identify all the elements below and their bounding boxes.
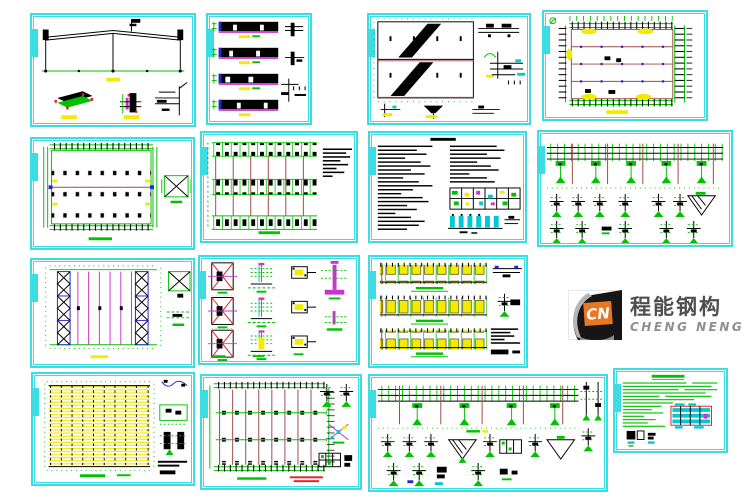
logo-name-english: CHENG NENG	[630, 320, 744, 334]
notes-title	[652, 375, 685, 378]
company-logo: CN 程能钢构 CHENG NENG	[568, 284, 718, 346]
sheet-label	[80, 474, 105, 477]
general-notes-drawing	[372, 135, 523, 239]
mini-schedule	[450, 188, 520, 209]
gable-elevations-drawing	[371, 17, 527, 121]
gable-elevation	[374, 19, 473, 102]
sheet-truss-elevations	[368, 255, 528, 368]
detail-connection	[120, 93, 141, 119]
drawing-collage: CN 程能钢构 CHENG NENG	[0, 0, 750, 500]
plan-grid	[49, 151, 154, 224]
north-mark	[550, 18, 556, 24]
legend-symbols	[627, 431, 656, 447]
brace-column-right	[135, 272, 148, 345]
right-column-details	[580, 382, 604, 451]
red-label-line-2	[294, 480, 319, 482]
logo-cn-badge: CN	[583, 301, 613, 326]
sheet-cross-section	[30, 13, 196, 127]
base-details	[381, 104, 500, 119]
red-label-line-1	[290, 476, 323, 478]
sheet-bracing-layout	[200, 374, 362, 490]
long-elevation	[378, 386, 579, 433]
side-details	[158, 380, 187, 474]
sheet-gable-elevations	[367, 13, 531, 125]
notes-block	[323, 148, 352, 177]
logo-abbr: CN	[586, 304, 611, 324]
sheet-purlin-plan	[31, 372, 195, 486]
foundation-plan-drawing	[204, 135, 354, 239]
logo-name-chinese: 程能钢构	[630, 296, 744, 319]
brace-column-left	[57, 272, 70, 345]
cross-section-drawing	[34, 17, 192, 123]
notes-right-column	[450, 146, 505, 183]
truss-elevations-drawing	[372, 259, 524, 364]
elevation-strip-3	[212, 74, 278, 90]
wall-section-details	[281, 23, 306, 102]
bracing-plan-drawing	[34, 262, 191, 364]
bracing-layout-drawing	[204, 378, 358, 486]
sheet-bracing-plan	[30, 258, 195, 368]
detail-roof-panel	[54, 91, 93, 119]
sheet-roof-plan	[542, 10, 708, 121]
notes-title	[430, 138, 455, 141]
sheet-general-notes	[368, 131, 527, 243]
detail-eave	[155, 83, 187, 116]
sheet-label	[91, 355, 109, 358]
foundation-sections	[448, 214, 520, 234]
side-details	[491, 266, 522, 355]
purlin-plan-drawing	[35, 376, 191, 482]
plan-grid	[571, 29, 672, 98]
elevation-strip-2	[212, 48, 278, 64]
joint-details-row-1	[381, 434, 575, 463]
sheet-column-details	[198, 255, 360, 365]
logo-icon: CN	[568, 290, 622, 340]
green-notes-drawing	[617, 372, 724, 449]
elevation-strip-4	[212, 100, 278, 116]
anchor-core-highlight	[259, 338, 265, 350]
notes-left-column	[378, 146, 433, 230]
side-details	[319, 384, 353, 467]
side-details	[167, 272, 190, 326]
crane-beam-drawing	[541, 134, 729, 243]
logo-text: 程能钢构 CHENG NENG	[630, 296, 744, 333]
anchor-column-tall	[321, 261, 348, 299]
truss-strip-1	[380, 263, 487, 292]
connection-details-row	[550, 192, 715, 243]
brace-detail	[162, 176, 191, 203]
truss-strip-2	[380, 296, 487, 325]
column-plan-drawing	[34, 141, 191, 246]
roof-plan-drawing	[546, 14, 704, 117]
crane-beam-elevation	[547, 144, 723, 188]
elevation-strip-1	[212, 22, 278, 38]
column-details-drawing	[202, 259, 356, 361]
pier-rows	[212, 143, 317, 230]
building-section	[42, 19, 184, 82]
joint-details-row-2	[387, 463, 518, 486]
frame-elevation-drawing	[372, 378, 604, 488]
truss-strip-3	[380, 328, 487, 357]
sheet-frame-elevation	[368, 374, 608, 492]
sheet-green-notes	[613, 368, 728, 453]
gutter-detail	[484, 52, 525, 85]
elevation-strips-drawing	[210, 17, 308, 121]
sheet-foundation-plan	[200, 131, 358, 243]
grid-lines	[216, 390, 327, 465]
sheet-elevation-strips	[206, 13, 312, 125]
sheet-label	[237, 477, 266, 479]
ridge-detail	[478, 24, 519, 37]
anchor-small	[325, 311, 346, 331]
sheet-label	[259, 231, 280, 234]
purlin-lines	[77, 272, 132, 345]
sheet-label-2	[117, 474, 131, 476]
sheet-crane-beam	[537, 130, 733, 247]
sheet-label	[89, 237, 112, 240]
notes-table	[671, 403, 711, 428]
purlin-field	[49, 386, 150, 467]
sheet-column-plan	[30, 137, 195, 250]
